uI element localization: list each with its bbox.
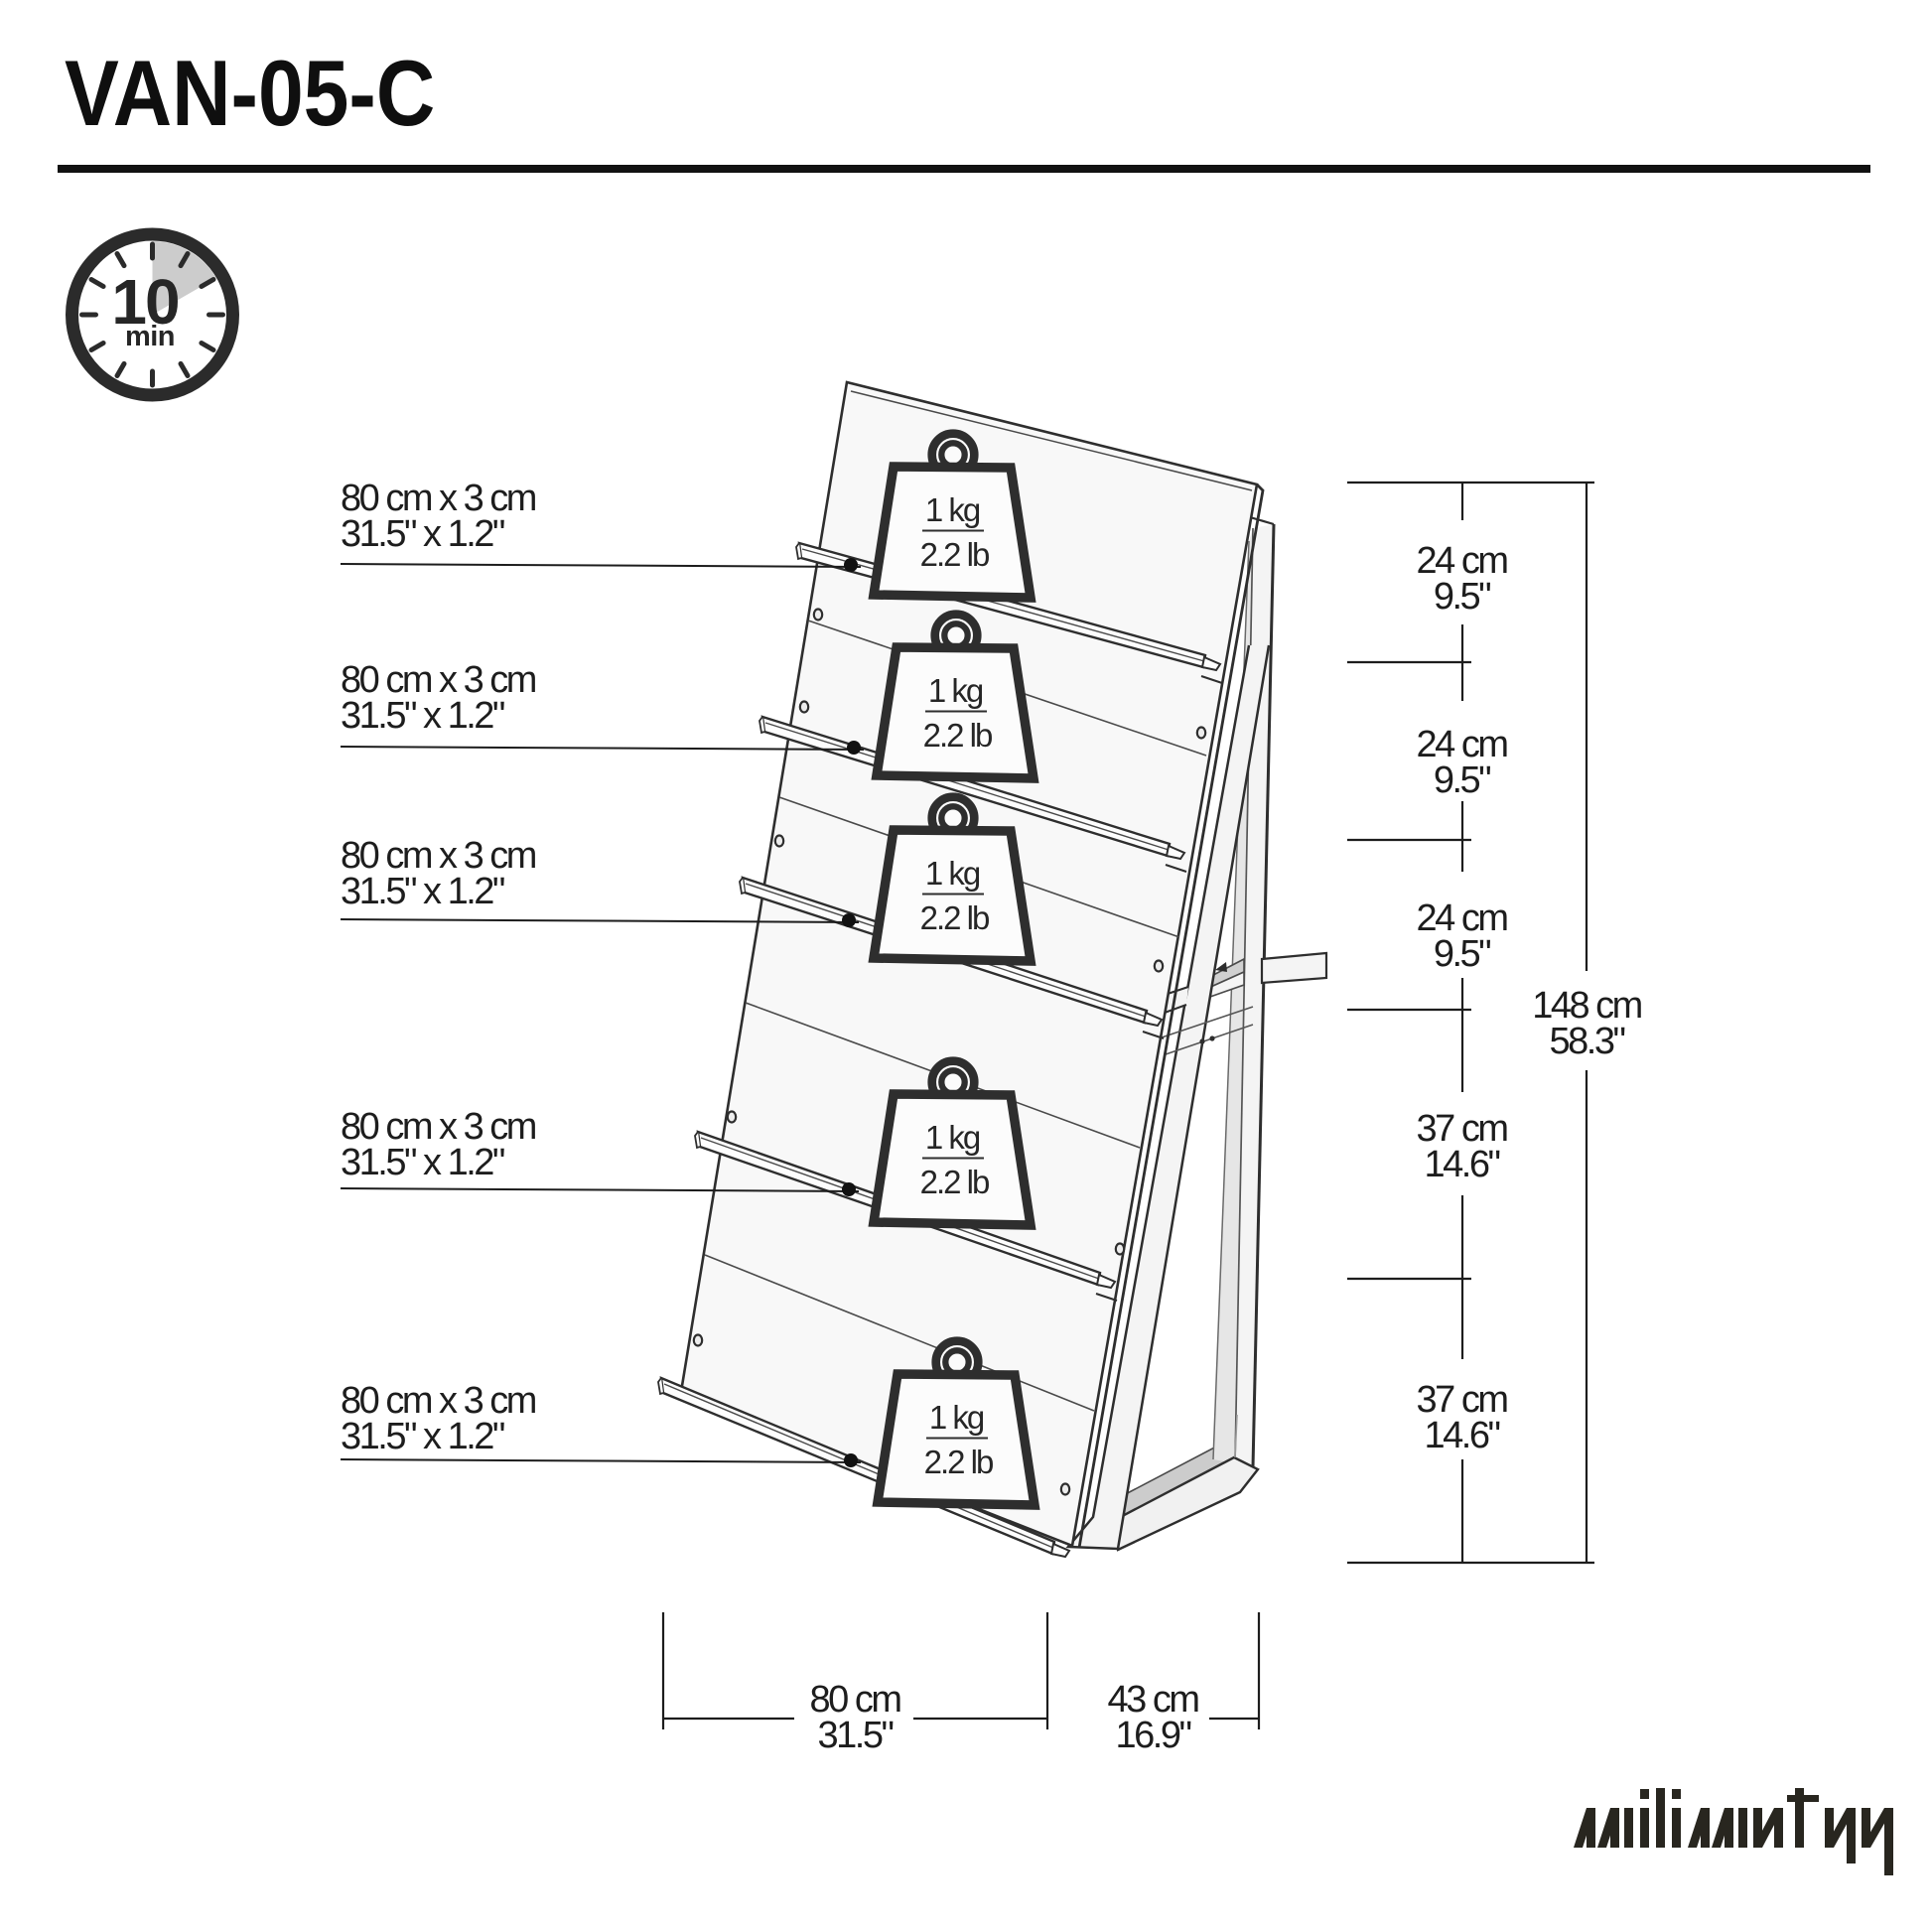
svg-text:1 kg: 1 kg [928, 672, 983, 709]
svg-text:2.2 lb: 2.2 lb [924, 1444, 993, 1480]
svg-text:2.2 lb: 2.2 lb [920, 536, 989, 573]
svg-text:2.2 lb: 2.2 lb [920, 1164, 989, 1200]
svg-text:1 kg: 1 kg [925, 855, 980, 892]
svg-text:1 kg: 1 kg [925, 491, 980, 528]
svg-text:2.2 lb: 2.2 lb [923, 717, 992, 754]
svg-text:1 kg: 1 kg [929, 1399, 984, 1436]
svg-text:1 kg: 1 kg [925, 1119, 980, 1156]
svg-text:2.2 lb: 2.2 lb [920, 899, 989, 936]
